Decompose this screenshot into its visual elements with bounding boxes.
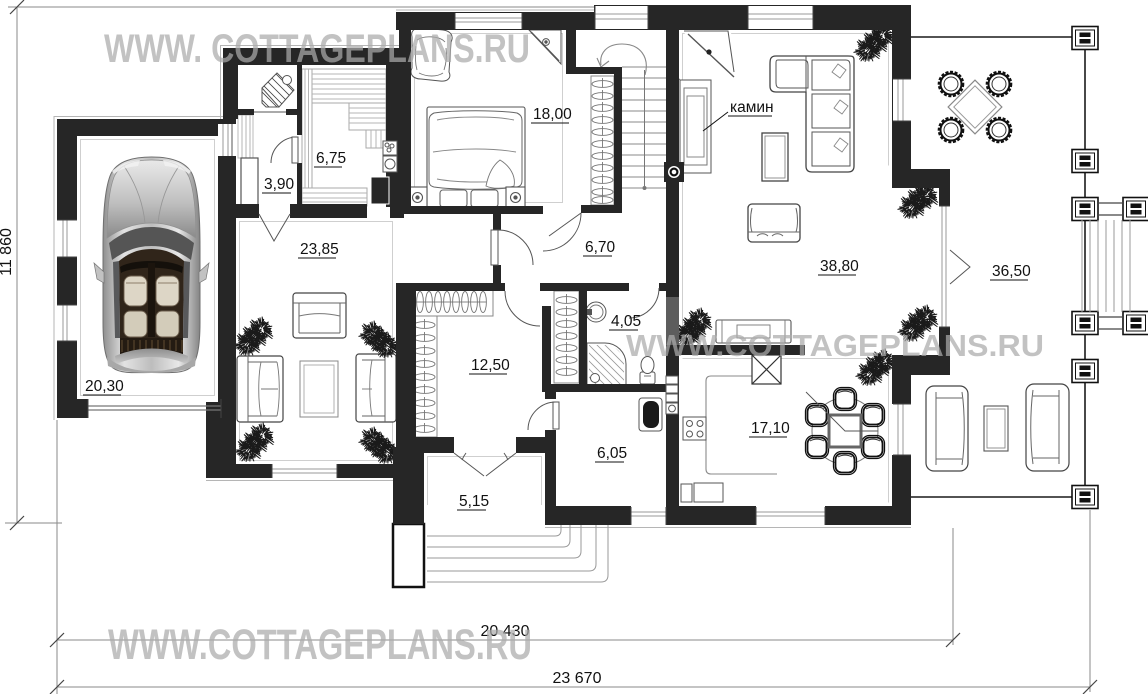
svg-text:5,15: 5,15 bbox=[459, 493, 489, 510]
svg-text:17,10: 17,10 bbox=[751, 420, 790, 437]
svg-text:камин: камин bbox=[730, 99, 774, 116]
svg-text:38,80: 38,80 bbox=[820, 258, 859, 275]
svg-text:23,85: 23,85 bbox=[300, 241, 339, 258]
svg-text:23 670: 23 670 bbox=[553, 670, 602, 687]
svg-text:WWW.COTTAGEPLANS.RU: WWW.COTTAGEPLANS.RU bbox=[108, 621, 532, 669]
svg-text:WWW.COTTAGEPLANS.RU: WWW.COTTAGEPLANS.RU bbox=[626, 328, 1044, 363]
svg-text:WWW. COTTAGEPLANS.RU: WWW. COTTAGEPLANS.RU bbox=[104, 27, 530, 71]
svg-text:6,75: 6,75 bbox=[316, 150, 346, 167]
svg-text:3,90: 3,90 bbox=[264, 176, 295, 193]
svg-text:18,00: 18,00 bbox=[533, 106, 572, 123]
svg-text:6,70: 6,70 bbox=[585, 239, 616, 256]
svg-text:12,50: 12,50 bbox=[471, 357, 510, 374]
svg-text:11 860: 11 860 bbox=[0, 228, 15, 276]
svg-text:20,30: 20,30 bbox=[85, 378, 124, 395]
svg-text:36,50: 36,50 bbox=[992, 263, 1031, 280]
svg-text:6,05: 6,05 bbox=[597, 445, 627, 462]
